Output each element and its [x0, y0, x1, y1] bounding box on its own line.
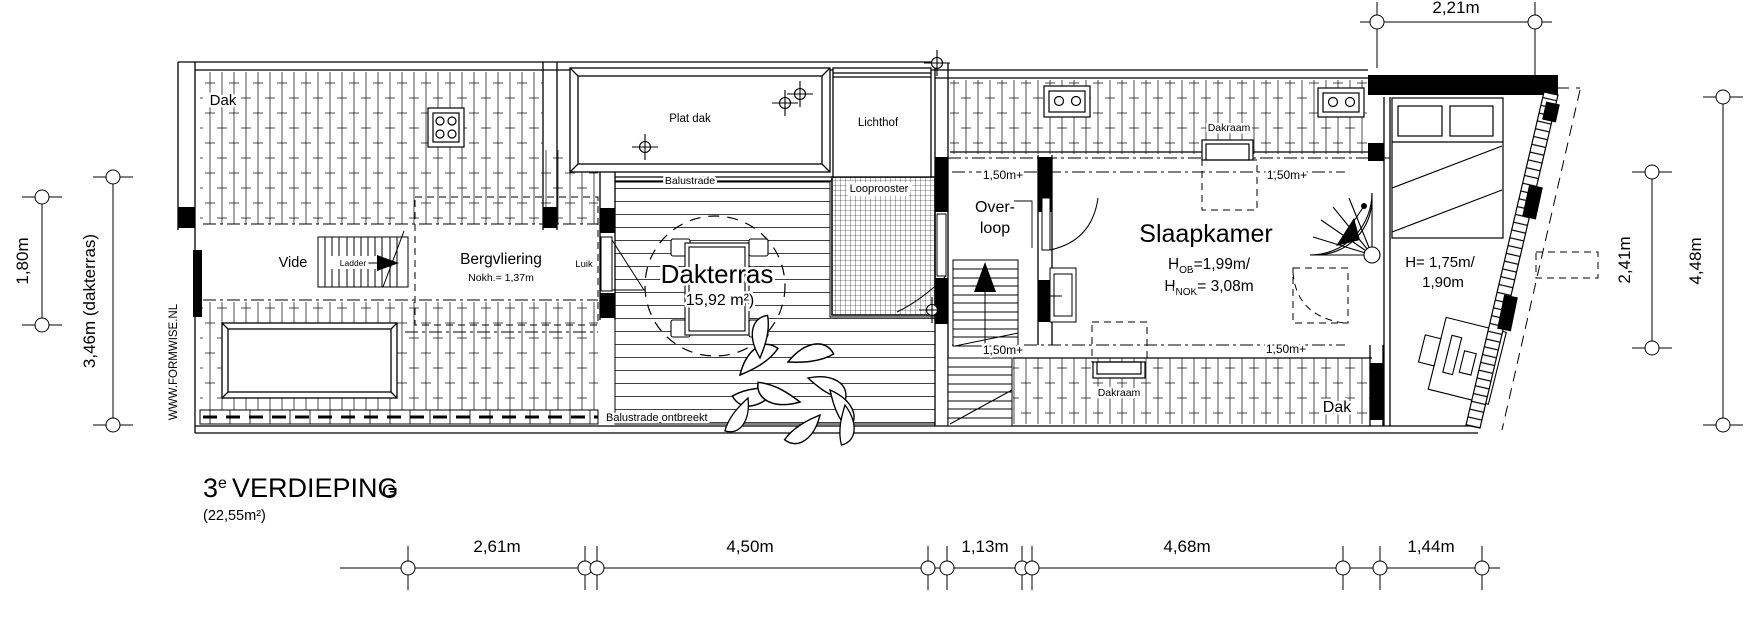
dimension-bottom-label-5: 1,44m: [1407, 537, 1454, 556]
dakraam-bottom-frame: [1093, 362, 1145, 378]
dimension-right-inner-label: 2,41m: [1615, 236, 1634, 283]
height-symbol: H: [1164, 278, 1175, 295]
floor-name: VERDIEPING: [232, 473, 399, 503]
overloop-label-line1: Over-: [975, 199, 1015, 216]
dakraam-top-frame: [1202, 140, 1253, 160]
dimension-left-outer-label: 3,46m (dakterras): [80, 234, 99, 368]
closet-icon: [1050, 268, 1076, 322]
slaapkamer-height2-label: HNOK= 3,08m: [1164, 278, 1253, 298]
floor-area-label: (22,55m²): [203, 508, 266, 524]
bed-height-label-line2: 1,90m: [1422, 274, 1464, 291]
floor-plan-drawing: Dak Plat dak Lichthof Balustrade Looproo…: [0, 0, 1747, 631]
dimension-left-inner-label: 1,80m: [13, 237, 32, 284]
dakraam-top-label: Dakraam: [1208, 122, 1251, 134]
bergvliering-label: Bergvliering: [460, 251, 542, 268]
floor-plan-canvas: Dak Plat dak Lichthof Balustrade Looproo…: [0, 0, 1747, 631]
dimension-bottom-label-1: 2,61m: [473, 537, 520, 556]
dimension-bottom-label-3: 1,13m: [961, 537, 1008, 556]
dakterras-area-label: 15,92 m²): [686, 292, 754, 309]
height-sub: NOK: [1176, 287, 1198, 298]
skylight-4pane-icon: [428, 108, 464, 147]
dimension-left-outer: [93, 170, 133, 432]
overloop-leader-line: [1014, 201, 1032, 248]
bed-height-label-line1: H= 1,75m/: [1405, 254, 1475, 271]
dimension-top-label: 2,21m: [1432, 0, 1479, 17]
bergvliering-height-label: Nokh.= 1,37m: [468, 272, 534, 284]
stairs-up-icon: [953, 260, 1018, 346]
dimension-right-outer: [1703, 90, 1743, 432]
balustrade-missing-label: Balustrade ontbreekt: [606, 412, 708, 424]
level-top-left-label: 1,50m+: [983, 168, 1023, 182]
dimension-right-outer-label: 4,48m: [1686, 237, 1705, 284]
height-sub: OB: [1179, 265, 1194, 276]
height-symbol: H: [1168, 256, 1179, 273]
dimension-bottom-label-4: 4,68m: [1163, 537, 1210, 556]
bed-icon: [1392, 98, 1503, 238]
level-bottom-right-label: 1,50m+: [1266, 342, 1306, 356]
slaapkamer-label: Slaapkamer: [1139, 220, 1272, 248]
plat-dak-bottom-roof: [222, 323, 397, 398]
looprooster-label: Looprooster: [850, 183, 909, 195]
overloop-label-line2: loop: [980, 220, 1010, 237]
floor-number: 3: [203, 473, 218, 503]
dimension-right-inner: [1632, 165, 1672, 355]
lichthof-label: Lichthof: [858, 117, 899, 129]
vide-label: Vide: [279, 255, 308, 271]
level-bottom-left-label: 1,50m+: [983, 343, 1023, 357]
height-val: =1,99m/: [1194, 256, 1251, 273]
skylight-2pane-icon-left: [1044, 86, 1090, 117]
floor-title: 3eVERDIEPING: [203, 473, 398, 503]
slaapkamer-height1-label: HOB=1,99m/: [1168, 256, 1251, 276]
ladder-label: Ladder: [340, 258, 367, 268]
skylight-2pane-icon-right: [1318, 88, 1364, 117]
looprooster-grid: [832, 177, 935, 315]
balustrade-label: Balustrade: [665, 175, 715, 187]
spiral-stair-icon: [1310, 193, 1380, 263]
dak-top-left-label: Dak: [210, 92, 237, 109]
height-val: = 3,08m: [1197, 278, 1253, 295]
level-top-right-label: 1,50m+: [1267, 168, 1307, 182]
luik-label: Luik: [575, 259, 593, 270]
dakterras-label: Dakterras: [661, 259, 774, 289]
dak-bottom-right-label: Dak: [1323, 399, 1352, 416]
watermark: WWW.FORMWISE.NL: [168, 303, 180, 420]
dakraam-bottom-label: Dakraam: [1098, 387, 1141, 399]
plat-dak-top-label: Plat dak: [669, 113, 711, 125]
stairs-lower-flight-icon: [948, 358, 1012, 426]
dimension-bottom-label-2: 4,50m: [726, 537, 773, 556]
slaapkamer-door-icon: [1042, 198, 1098, 250]
floor-superscript: e: [218, 475, 227, 492]
